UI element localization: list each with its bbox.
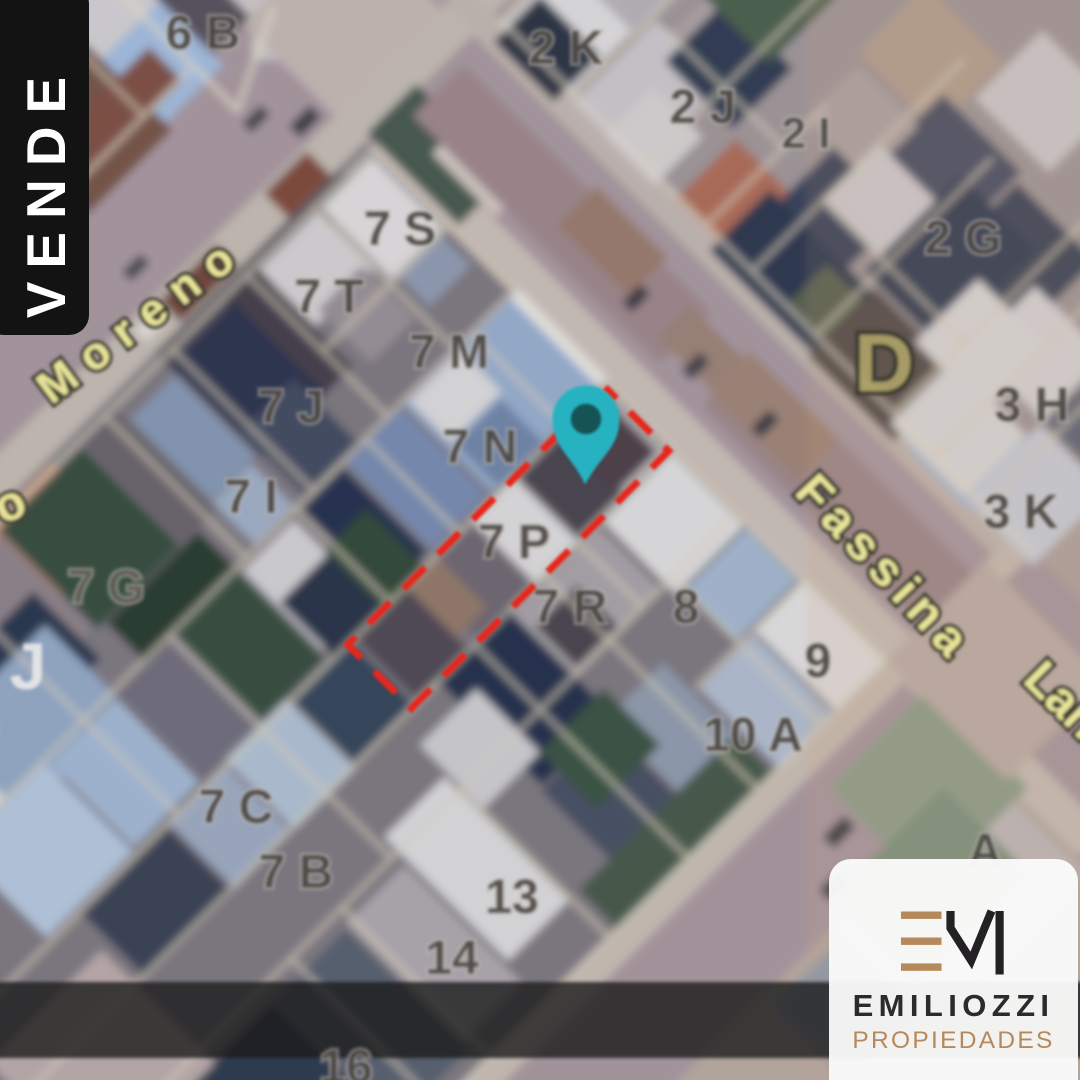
svg-text:14: 14 xyxy=(425,932,479,985)
svg-text:7 G: 7 G xyxy=(67,561,144,614)
svg-text:7 N: 7 N xyxy=(443,421,518,474)
svg-text:7 R: 7 R xyxy=(533,581,608,634)
svg-text:2 J: 2 J xyxy=(670,81,737,134)
svg-text:7 M: 7 M xyxy=(409,326,489,379)
svg-text:2 K: 2 K xyxy=(529,22,604,75)
svg-text:2 I: 2 I xyxy=(782,109,831,158)
svg-text:7 T: 7 T xyxy=(294,271,363,324)
svg-text:7 C: 7 C xyxy=(199,781,274,834)
svg-text:2 G: 2 G xyxy=(924,212,1001,265)
svg-text:J: J xyxy=(10,629,47,703)
svg-text:13: 13 xyxy=(485,871,538,924)
svg-text:7 S: 7 S xyxy=(364,203,436,256)
svg-text:9: 9 xyxy=(805,635,832,688)
svg-text:7 P: 7 P xyxy=(478,516,550,569)
svg-text:7 J: 7 J xyxy=(258,381,325,434)
svg-text:D: D xyxy=(854,318,913,409)
svg-text:3 H: 3 H xyxy=(995,379,1070,432)
svg-text:7 I: 7 I xyxy=(224,471,277,524)
svg-text:10 A: 10 A xyxy=(703,709,803,762)
svg-text:7 B: 7 B xyxy=(259,846,334,899)
svg-text:3 K: 3 K xyxy=(984,486,1059,539)
svg-text:8: 8 xyxy=(673,581,700,634)
svg-text:6 B: 6 B xyxy=(166,7,241,60)
svg-text:16: 16 xyxy=(319,1041,372,1080)
